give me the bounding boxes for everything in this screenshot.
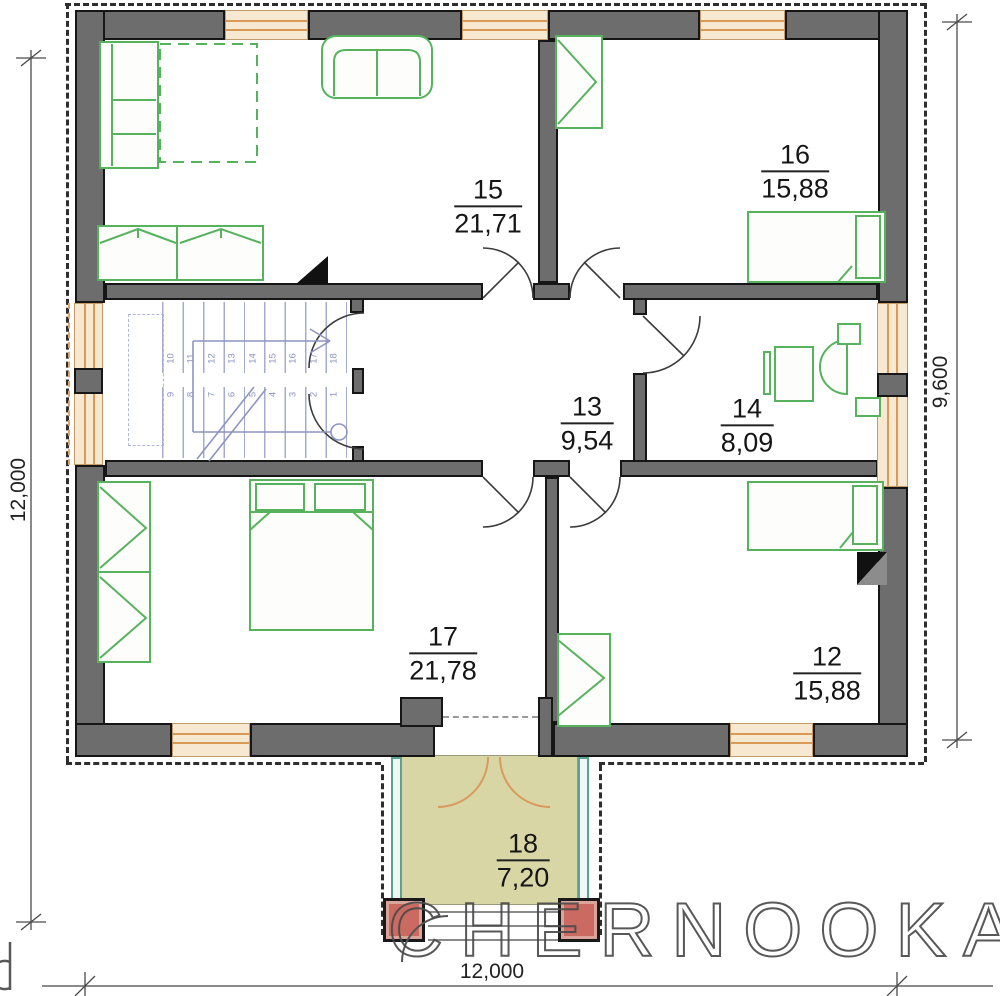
exterior-wall-right	[878, 10, 908, 303]
dimension-left: 12,000	[7, 458, 31, 522]
wall-hall-room14-stub	[633, 298, 647, 315]
stair-step-number: 1	[329, 388, 340, 402]
room14-desk-and-chair	[764, 324, 880, 416]
wall-stair-hinge-pier	[350, 298, 364, 313]
room-area: 21,78	[409, 655, 477, 686]
exterior-wall-bottom	[250, 723, 435, 757]
interior-wall	[620, 460, 878, 477]
dimension-right: 9,600	[929, 356, 953, 409]
stair-step-number: 18	[329, 352, 340, 366]
interior-wall	[533, 460, 570, 477]
porch-floor	[400, 755, 578, 905]
room16-wardrobe	[556, 36, 602, 128]
porch-railing-right	[578, 757, 589, 905]
interior-wall	[105, 283, 483, 300]
room-number: 14	[721, 394, 774, 426]
room-area: 15,88	[761, 173, 829, 204]
room-label-15: 15 21,71	[454, 175, 522, 238]
window-top-2	[462, 10, 548, 40]
stair-step-number: 17	[308, 352, 319, 366]
dimension-bottom: 12,000	[460, 960, 524, 984]
room-number: 18	[497, 829, 550, 861]
room-number: 17	[409, 622, 477, 654]
window-top-1	[225, 10, 308, 40]
porch-opening-dashed-line	[443, 716, 538, 718]
room-label-18: 18 7,20	[497, 829, 550, 892]
window-mullion	[877, 373, 908, 397]
window-mullion	[74, 368, 103, 394]
stair-step-number: 4	[268, 388, 279, 402]
room-area: 9,54	[561, 425, 614, 456]
porch-column-left	[383, 898, 425, 942]
room-area: 21,71	[454, 208, 522, 239]
porch-column-right	[558, 898, 600, 942]
room-label-13: 13 9,54	[561, 392, 614, 455]
stair-step-number: 12	[206, 352, 217, 366]
stair-step-number: 13	[227, 352, 238, 366]
wall-room15-room16	[538, 40, 558, 283]
room-area: 8,09	[721, 427, 774, 458]
porch-door-stub	[538, 697, 553, 757]
exterior-wall-top	[548, 10, 700, 40]
stair-step-number: 3	[288, 388, 299, 402]
interior-wall	[623, 283, 878, 300]
window-bottom-room12	[730, 723, 813, 757]
exterior-wall-left	[75, 10, 105, 303]
porch-steps	[402, 912, 558, 962]
roof-outline-bottom-right	[599, 762, 924, 765]
stair-step-number: 15	[268, 352, 279, 366]
room15-loveseat	[322, 36, 432, 98]
wall-hall-room14	[633, 373, 647, 462]
stair-landing-dashed	[128, 314, 164, 446]
porch-railing-left	[391, 757, 402, 905]
window-projection-dashes	[68, 303, 70, 465]
room15-wardrobes	[98, 226, 263, 280]
stair-step-number: 16	[288, 352, 299, 366]
exterior-wall-bottom	[813, 723, 908, 757]
room-label-16: 16 15,88	[761, 140, 829, 203]
exterior-wall-top	[308, 10, 462, 40]
stair-step-number: 5	[247, 388, 258, 402]
roof-outline-bottom-left	[66, 762, 381, 765]
floor-plan: 15 21,71 16 15,88 13 9,54 14 8,09 17 21,…	[0, 0, 1000, 996]
watermark-edge-fragment	[0, 942, 10, 990]
wall-stair-mid-pier	[352, 368, 364, 394]
room15-corner-sofa	[100, 42, 158, 168]
room-number: 16	[761, 140, 829, 172]
exterior-wall-left	[75, 465, 105, 757]
room-label-12: 12 15,88	[793, 642, 861, 705]
room-area: 7,20	[497, 862, 550, 893]
roof-outline-right	[924, 3, 927, 762]
exterior-wall-bottom	[553, 723, 730, 757]
window-top-3	[700, 10, 785, 40]
roof-outline-top	[65, 3, 926, 6]
room-number: 12	[793, 642, 861, 674]
room-number: 13	[561, 392, 614, 424]
stair-step-number: 2	[308, 388, 319, 402]
interior-wall	[105, 460, 483, 477]
room16-bed	[748, 212, 885, 282]
window-bottom-room17	[172, 723, 250, 757]
stair-step-number: 10	[166, 352, 177, 366]
room17-wardrobe	[98, 482, 150, 662]
exterior-wall-right	[878, 487, 908, 757]
room12-wardrobe	[558, 634, 610, 726]
interior-wall	[533, 283, 570, 300]
room-label-14: 14 8,09	[721, 394, 774, 457]
stair-step-number: 8	[186, 388, 197, 402]
stair-step-number: 11	[186, 352, 197, 366]
room-area: 15,88	[793, 675, 861, 706]
room12-bed	[748, 482, 883, 550]
stair-step-number: 6	[227, 388, 238, 402]
section-marker-room15	[296, 256, 328, 284]
wall-room17-room12	[545, 477, 559, 723]
room15-bed-dashed	[160, 44, 257, 162]
stair-step-number: 14	[247, 352, 258, 366]
room17-double-bed	[250, 480, 373, 630]
porch-door-pier	[400, 697, 443, 727]
room-number: 15	[454, 175, 522, 207]
stair-step-number: 7	[206, 388, 217, 402]
room-label-17: 17 21,78	[409, 622, 477, 685]
exterior-wall-bottom	[75, 723, 172, 757]
stair-step-number: 9	[166, 388, 177, 402]
